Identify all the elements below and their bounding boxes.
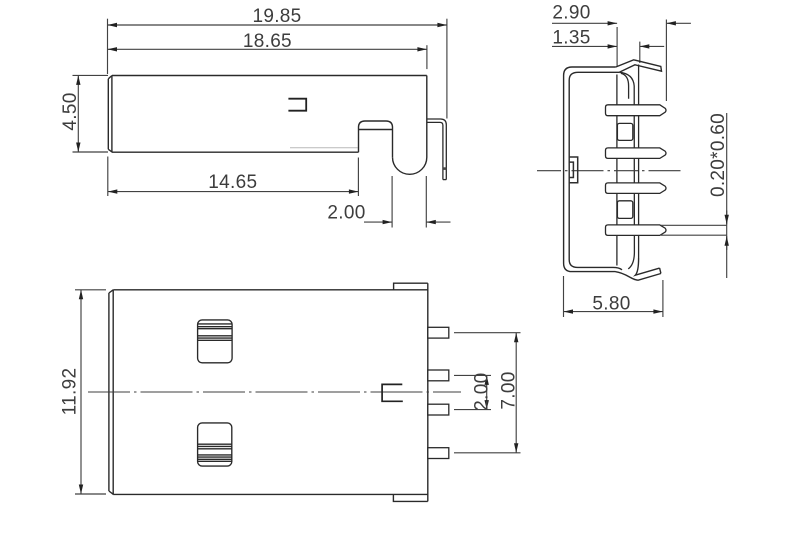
svg-text:11.92: 11.92 [60, 368, 81, 416]
svg-text:5.80: 5.80 [592, 293, 630, 314]
svg-text:0.20*0.60: 0.20*0.60 [708, 113, 729, 197]
svg-text:7.00: 7.00 [499, 371, 520, 409]
svg-text:4.50: 4.50 [60, 92, 81, 130]
svg-text:2.00: 2.00 [472, 373, 493, 411]
svg-text:2.90: 2.90 [552, 2, 590, 23]
svg-text:18.65: 18.65 [243, 31, 292, 52]
svg-text:2.00: 2.00 [327, 203, 365, 224]
svg-text:19.85: 19.85 [252, 6, 301, 27]
svg-text:14.65: 14.65 [208, 172, 257, 193]
svg-text:1.35: 1.35 [552, 27, 590, 48]
